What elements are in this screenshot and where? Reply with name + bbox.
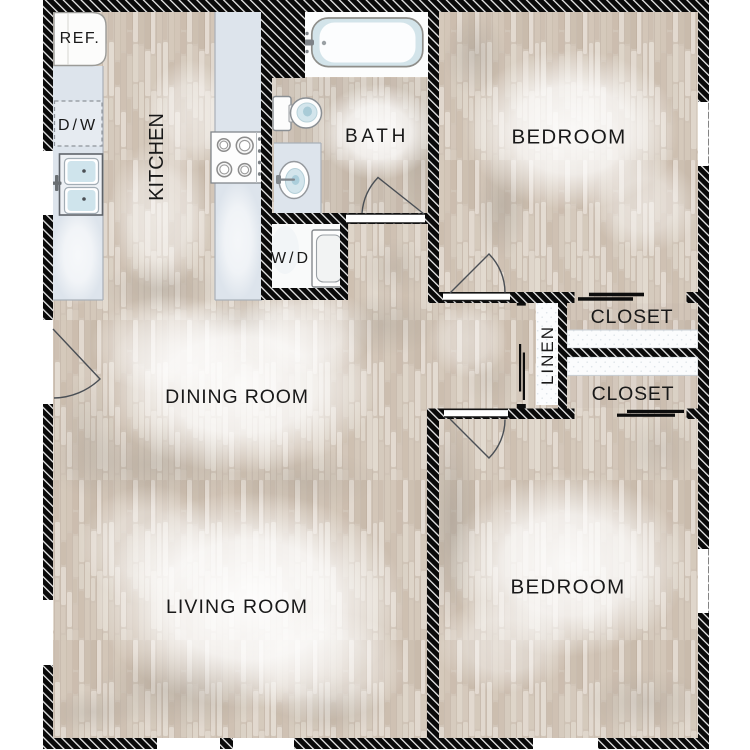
- svg-text:LIVING ROOM: LIVING ROOM: [166, 596, 308, 618]
- svg-text:BEDROOM: BEDROOM: [510, 575, 625, 598]
- svg-text:REF.: REF.: [60, 30, 101, 47]
- svg-text:D/W: D/W: [58, 117, 98, 134]
- svg-text:DINING ROOM: DINING ROOM: [165, 386, 309, 408]
- svg-text:CLOSET: CLOSET: [592, 383, 675, 405]
- svg-text:LINEN: LINEN: [538, 325, 557, 385]
- svg-text:W/D: W/D: [271, 250, 311, 267]
- svg-text:BEDROOM: BEDROOM: [511, 125, 626, 148]
- svg-text:CLOSET: CLOSET: [591, 306, 674, 328]
- svg-text:BATH: BATH: [345, 126, 409, 147]
- svg-text:KITCHEN: KITCHEN: [146, 113, 168, 201]
